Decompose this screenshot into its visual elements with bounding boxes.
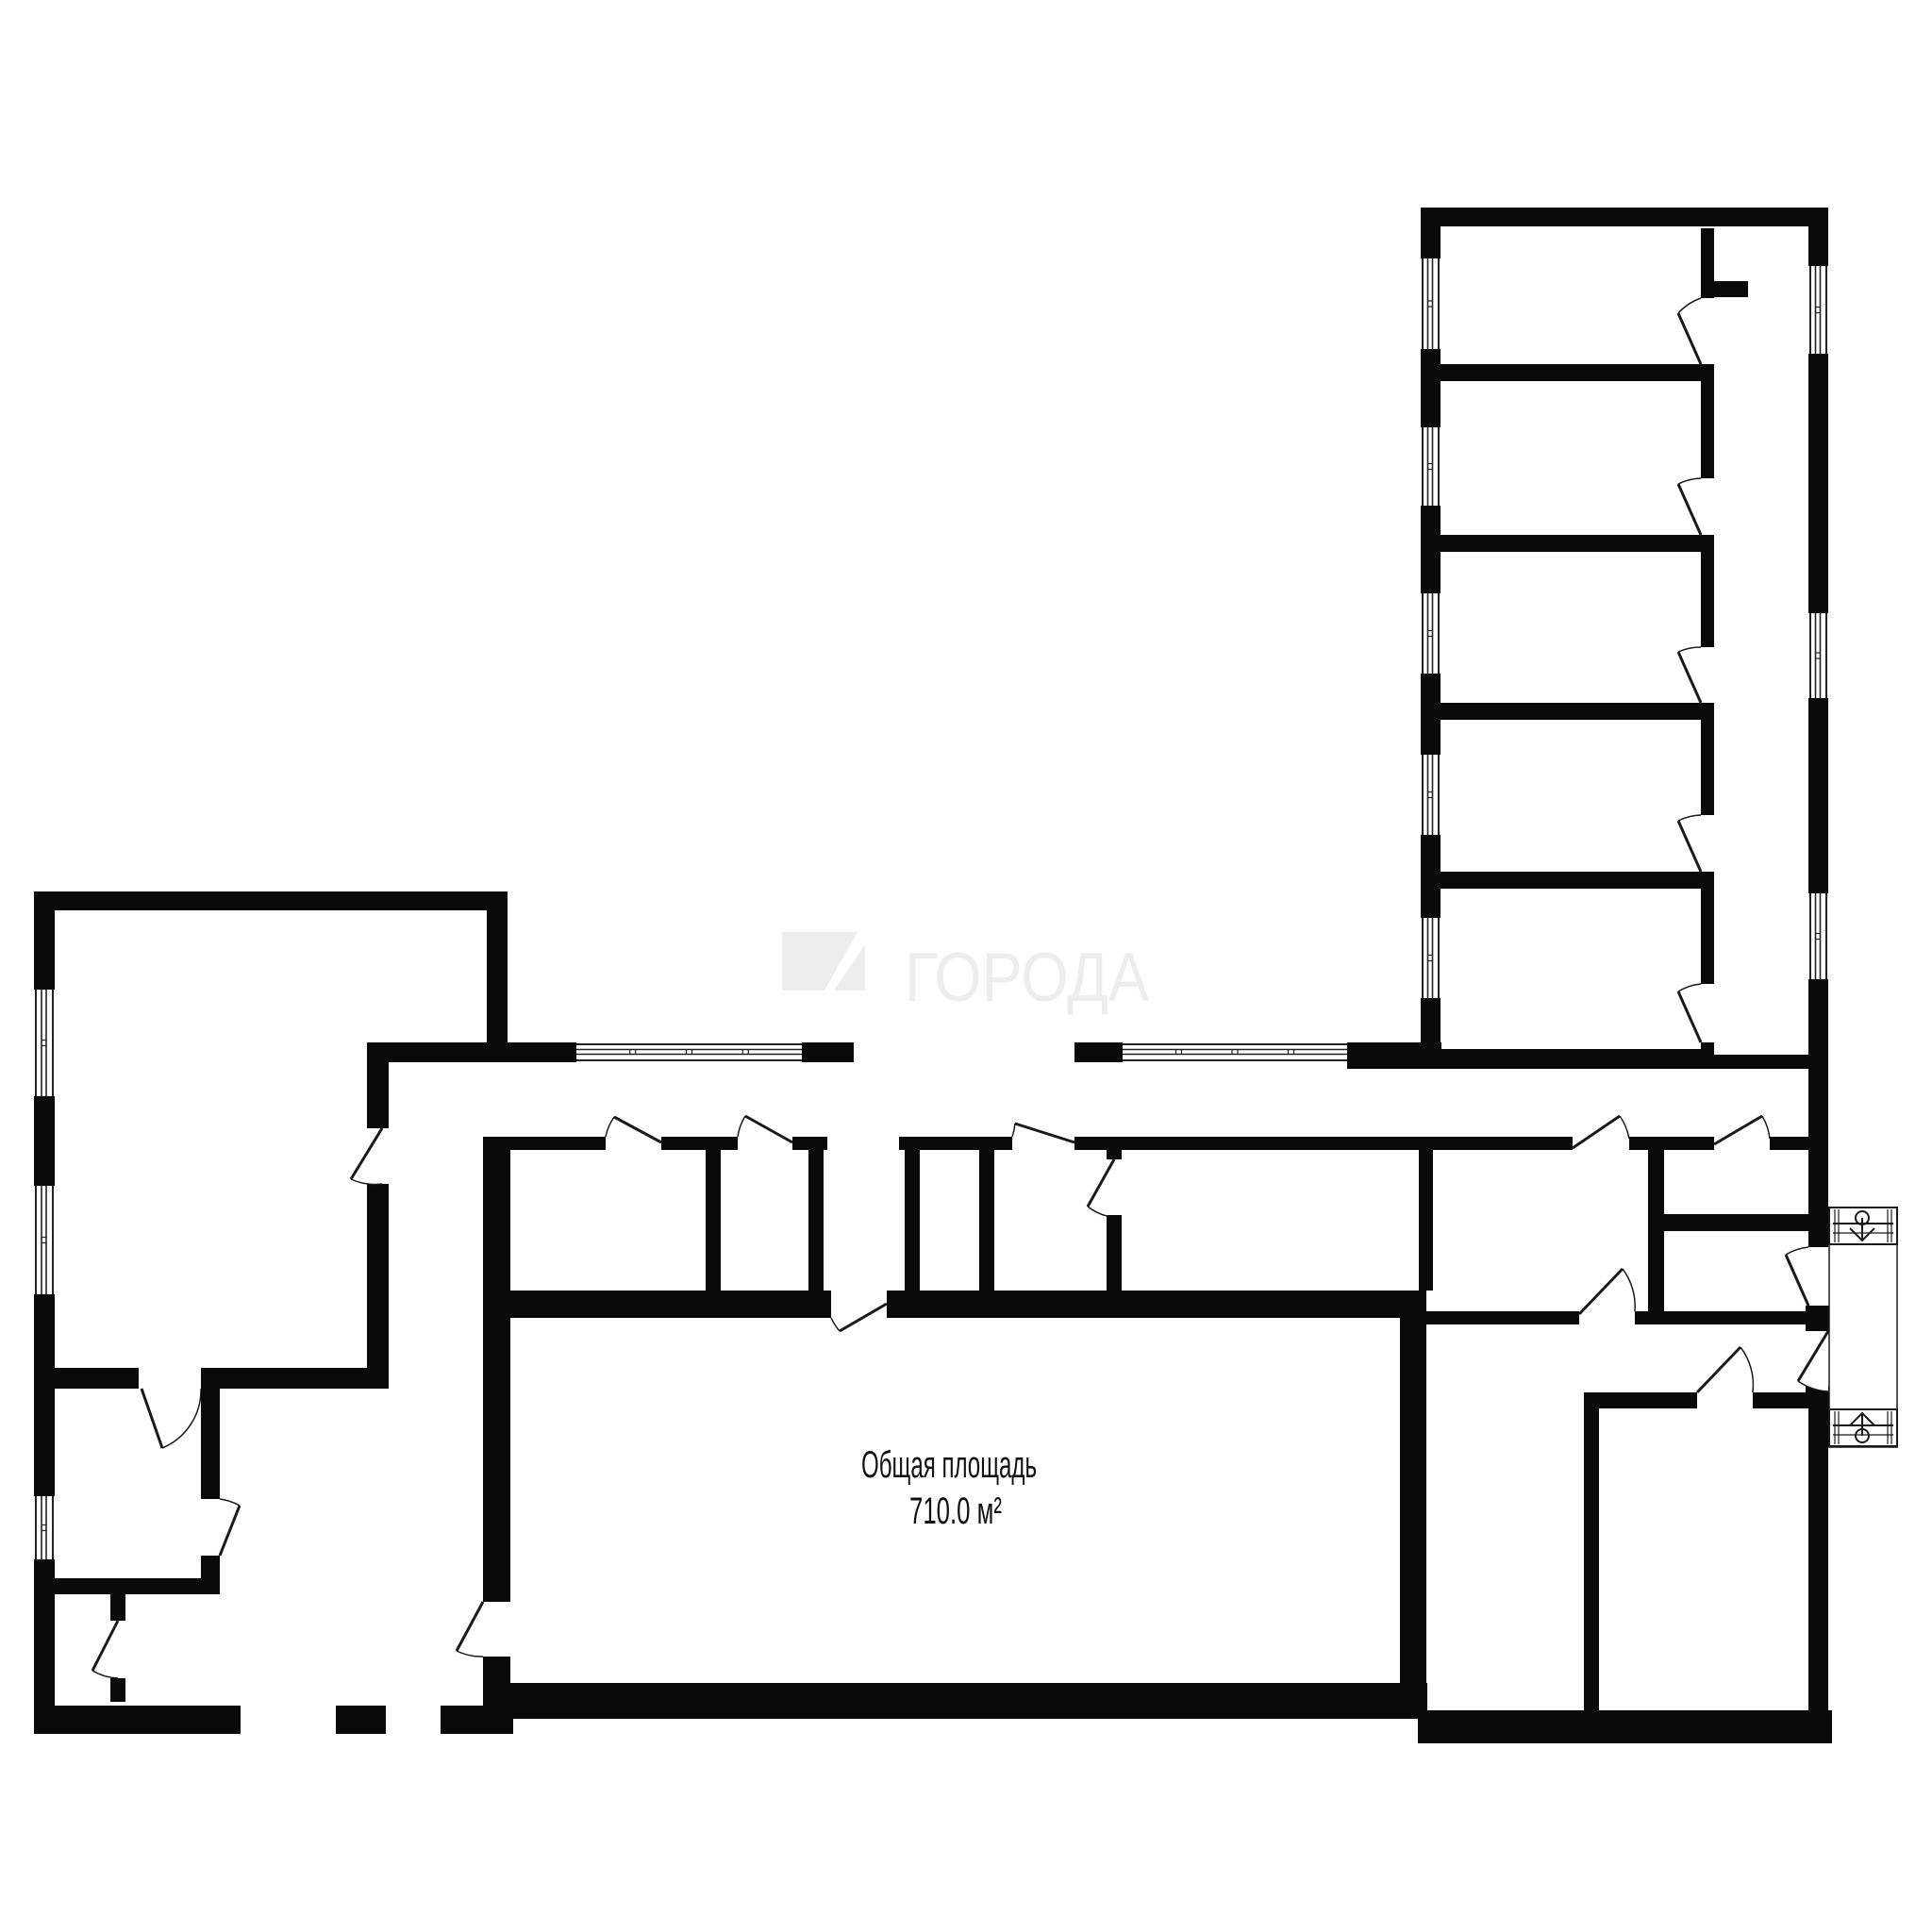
svg-text:ГОРОДА: ГОРОДА (905, 940, 1149, 1016)
svg-text:710.0 м²: 710.0 м² (909, 1491, 1002, 1532)
svg-text:Общая площадь: Общая площадь (861, 1444, 1037, 1486)
